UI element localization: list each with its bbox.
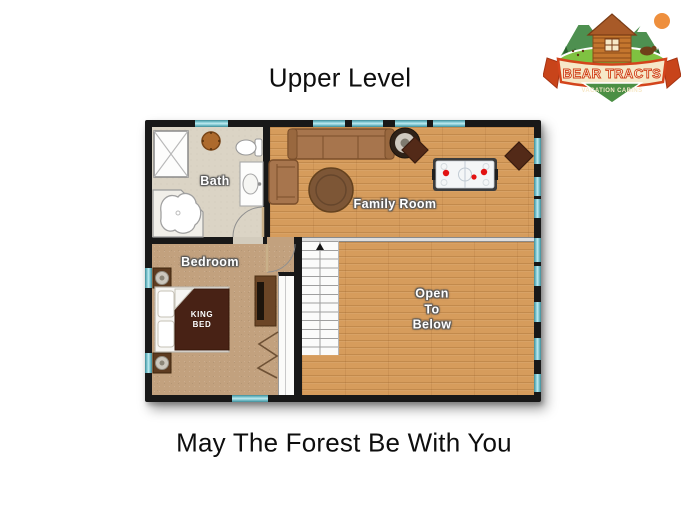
air-hockey-table [432,158,498,191]
bifold-closet-doors [258,332,278,378]
logo-tagline-text: VACATION CABINS [581,88,642,94]
sofa [288,129,394,159]
nightstand-with-lamp [153,353,171,373]
logo-banner-text: BEAR TRACTS [563,66,662,81]
air-hockey-puck [443,170,449,176]
toilet [236,139,262,156]
open-to-below-label: Open To Below [413,287,452,334]
king-bed-label: KING BED [191,310,213,330]
page: Upper Level [0,0,683,512]
floorplan: Bath Family Room Bedroom Open To Below K… [145,120,541,402]
page-title: Upper Level [269,63,411,94]
corner-tub [153,190,203,237]
bath-label: Bath [200,174,229,190]
nightstand-with-lamp [153,268,171,288]
bear-tracts-logo: BEAR TRACTS VACATION CABINS [543,2,681,108]
shower [154,131,188,177]
cabin-icon [588,14,636,62]
armchair [269,160,298,204]
round-ottoman [309,168,353,212]
family-room-label: Family Room [354,197,437,213]
ribbon-banner: BEAR TRACTS VACATION CABINS [543,58,681,103]
air-hockey-puck [481,169,487,175]
sun-icon [654,13,670,29]
page-caption: May The Forest Be With You [176,428,512,459]
air-hockey-puck [471,174,476,179]
bedroom-label: Bedroom [181,255,239,271]
bedroom-door-arc [267,244,295,272]
vanity-sink [240,162,263,206]
diamond-side-table [505,142,533,170]
bath-door-arc [233,207,263,237]
wood-stool [202,132,221,151]
dresser-with-tv [255,276,276,326]
